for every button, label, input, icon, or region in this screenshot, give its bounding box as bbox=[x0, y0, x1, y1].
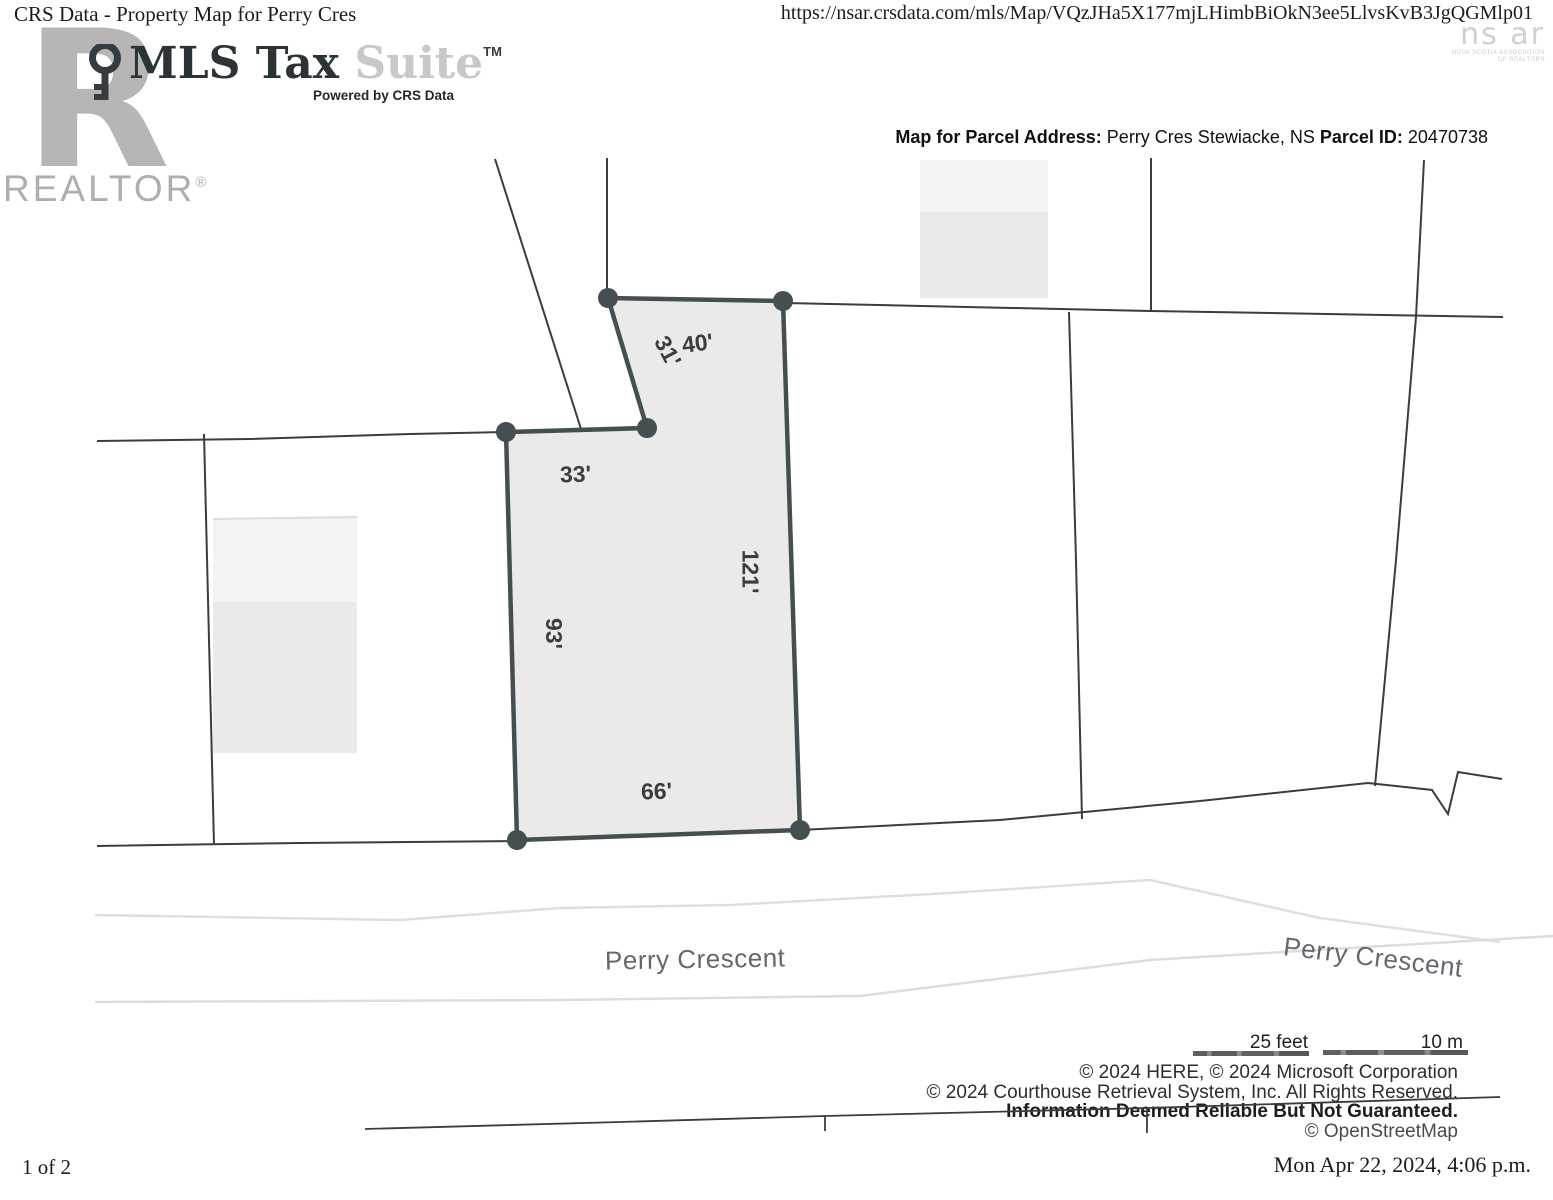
boundary-vertical-mid-bottom bbox=[1069, 312, 1082, 819]
attribution-courthouse: © 2024 Courthouse Retrieval System, Inc.… bbox=[927, 1083, 1458, 1103]
parcel-vertex-dot bbox=[790, 820, 810, 840]
dimension-label-66ft: 66' bbox=[641, 777, 673, 805]
building-footprint-left bbox=[213, 517, 357, 753]
boundary-slant-right bbox=[1375, 160, 1424, 786]
parcel-map bbox=[0, 0, 1553, 1200]
attribution-disclaimer: Information Deemed Reliable But Not Guar… bbox=[927, 1102, 1458, 1122]
parcel-vertex-dot bbox=[598, 288, 618, 308]
parcel-vertex-dot bbox=[496, 422, 516, 442]
boundary-horizontal-right bbox=[785, 303, 1503, 317]
boundary-horizontal-left bbox=[97, 432, 506, 441]
parcel-vertex-dot bbox=[507, 830, 527, 850]
print-page: CRS Data - Property Map for Perry Cres h… bbox=[0, 0, 1553, 1200]
attribution-here-microsoft: © 2024 HERE, © 2024 Microsoft Corporatio… bbox=[927, 1063, 1458, 1083]
street-label-perry-crescent-left: Perry Crescent bbox=[605, 942, 786, 976]
parcel-vertex-dot bbox=[637, 418, 657, 438]
scale-bar-meters bbox=[1323, 1050, 1468, 1055]
building-footprint-upper-right bbox=[920, 160, 1048, 298]
dimension-label-33ft: 33' bbox=[560, 460, 592, 488]
dimension-label-40ft: 40' bbox=[680, 328, 714, 359]
scale-bar-feet bbox=[1193, 1051, 1309, 1056]
boundary-vertical-left bbox=[204, 434, 214, 845]
dimension-label-93ft: 93' bbox=[540, 618, 567, 649]
boundary-diagonal bbox=[495, 159, 581, 429]
parcel-vertex-dot bbox=[773, 291, 793, 311]
attribution-openstreetmap: © OpenStreetMap bbox=[927, 1122, 1458, 1142]
dimension-label-121ft: 121' bbox=[736, 550, 763, 594]
map-attribution: © 2024 HERE, © 2024 Microsoft Corporatio… bbox=[927, 1063, 1458, 1141]
